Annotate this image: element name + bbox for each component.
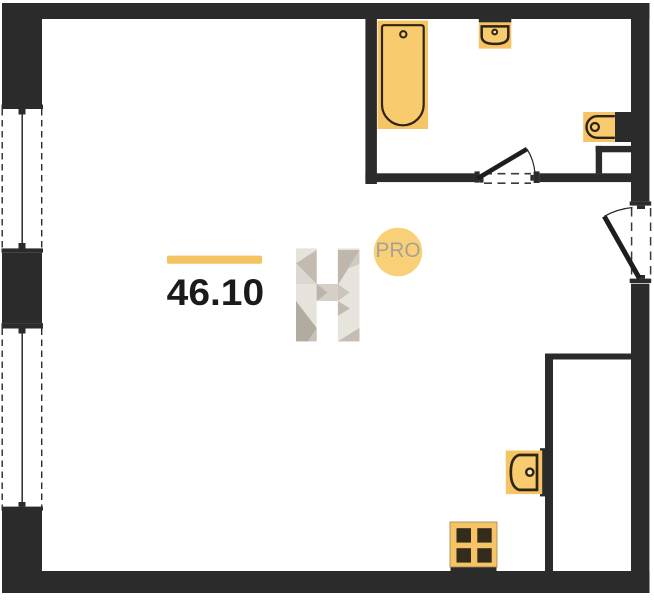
svg-text:46.10: 46.10: [167, 272, 264, 313]
svg-text:PRO: PRO: [376, 238, 421, 262]
